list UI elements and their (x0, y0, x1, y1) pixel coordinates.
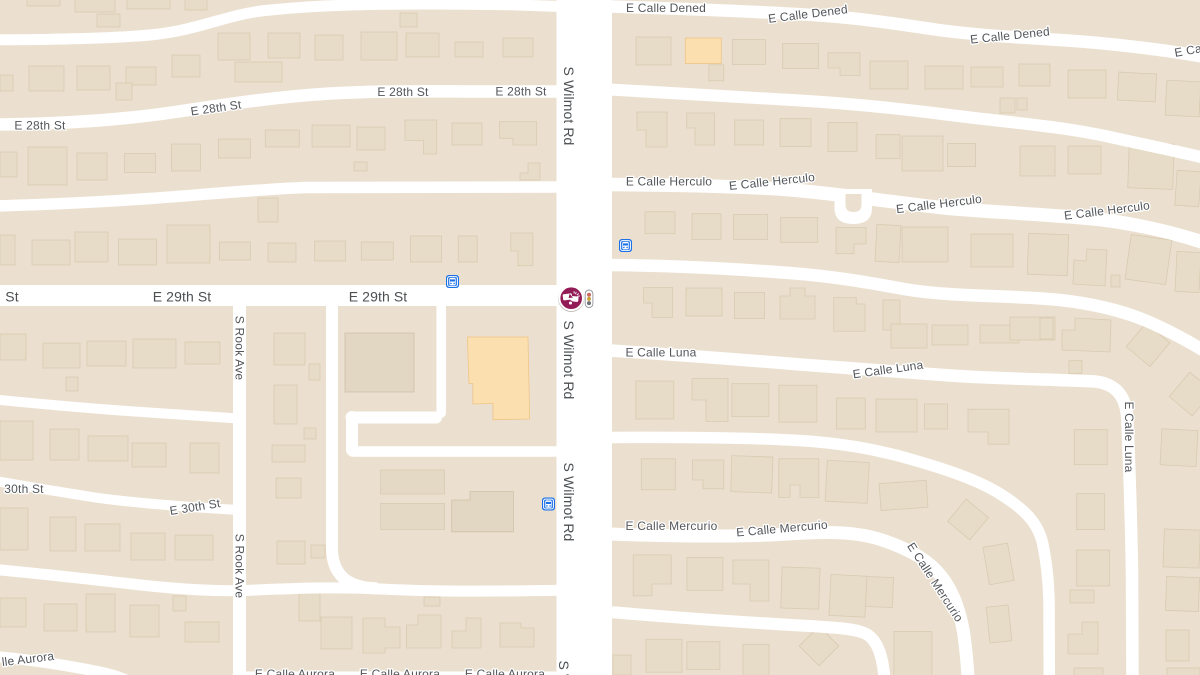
svg-text:E Calle Aurora: E Calle Aurora (465, 667, 545, 675)
svg-text:E 28th St: E 28th St (495, 85, 547, 99)
svg-text:S Wilmot Rd: S Wilmot Rd (561, 67, 577, 146)
svg-text:E Calle Dened: E Calle Dened (626, 1, 706, 15)
svg-text:S Wilmot Rd: S Wilmot Rd (561, 321, 577, 400)
svg-text:E Calle Mercurio: E Calle Mercurio (626, 519, 718, 533)
svg-text:E Calle Herculo: E Calle Herculo (626, 175, 712, 189)
svg-text:E Calle Aurora: E Calle Aurora (255, 667, 335, 675)
svg-text:E 28th St: E 28th St (377, 85, 429, 99)
svg-text:S Wilmot Rd: S Wilmot Rd (556, 661, 572, 675)
svg-text:E 29th St: E 29th St (349, 289, 408, 305)
svg-text:E Calle Luna: E Calle Luna (1122, 401, 1136, 472)
svg-text:E 29th St: E 29th St (153, 289, 212, 305)
svg-text:S Wilmot Rd: S Wilmot Rd (561, 463, 577, 542)
svg-text:E 28th St: E 28th St (14, 119, 66, 133)
svg-text:E Calle Aurora: E Calle Aurora (360, 667, 440, 675)
svg-text:S Rook Ave: S Rook Ave (233, 316, 247, 381)
svg-text:E Calle Luna: E Calle Luna (625, 346, 696, 360)
svg-text:St: St (5, 289, 18, 305)
svg-text:S Rook Ave: S Rook Ave (233, 534, 247, 599)
svg-text:30th St: 30th St (4, 482, 44, 496)
